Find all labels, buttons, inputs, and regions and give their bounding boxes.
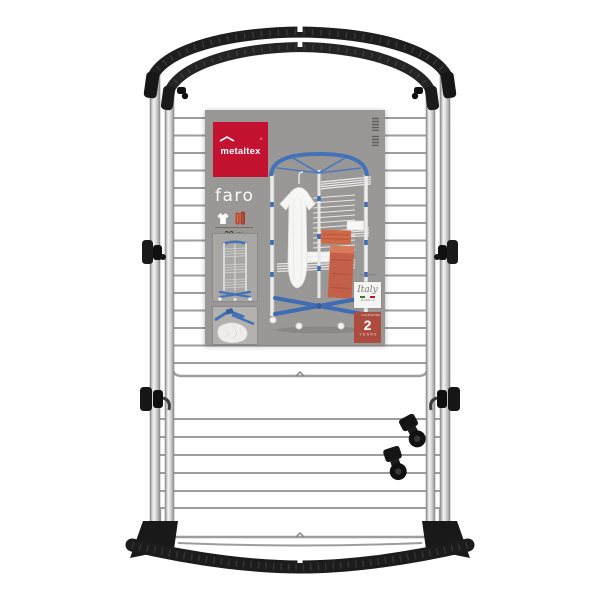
guarantee-years-word: YEARS — [359, 333, 375, 337]
capacity-icons — [215, 210, 246, 225]
top-arch — [143, 25, 457, 111]
brand-logo: metaltex ® — [213, 122, 268, 177]
hanger-hook-right — [412, 87, 423, 99]
made-in-italy-badge: Italy MADE IN — [354, 282, 381, 308]
guarantee-title: GUARANTEE — [361, 314, 373, 316]
italy-script-text: Italy — [354, 286, 381, 295]
brand-roof-icon — [219, 136, 235, 142]
pole-right-outer — [440, 70, 450, 552]
quality-note: quality warranty — [360, 274, 374, 277]
hanger-hook-left — [177, 87, 188, 99]
folded-dryer-icon — [213, 234, 257, 301]
towels-icon — [235, 211, 246, 225]
lower-wires — [160, 419, 440, 546]
spare-caster-2 — [382, 445, 409, 482]
code-mark — [372, 135, 379, 146]
guarantee-badge: GUARANTEE 2 YEARS — [354, 312, 381, 343]
code-mark — [372, 117, 379, 131]
pole-left-inner — [165, 88, 174, 552]
inset-folded-dryer — [212, 233, 258, 302]
storage-bag-icon — [213, 307, 257, 344]
italy-flag-icon — [360, 296, 375, 298]
inset-storage-bag — [212, 306, 258, 345]
guarantee-years-number: 2 — [354, 318, 381, 333]
pole-right-inner — [426, 88, 435, 552]
shirt-icon — [215, 212, 231, 225]
pole-left-outer — [150, 70, 160, 552]
product-name: faro — [215, 186, 254, 206]
brand-name: metaltex — [220, 146, 260, 157]
product-photo: metaltex ® faro 28 m — [0, 0, 600, 600]
made-in-caption: MADE IN — [361, 299, 375, 302]
brand-trademark: ® — [260, 138, 262, 141]
product-label: metaltex ® faro 28 m — [205, 110, 385, 345]
